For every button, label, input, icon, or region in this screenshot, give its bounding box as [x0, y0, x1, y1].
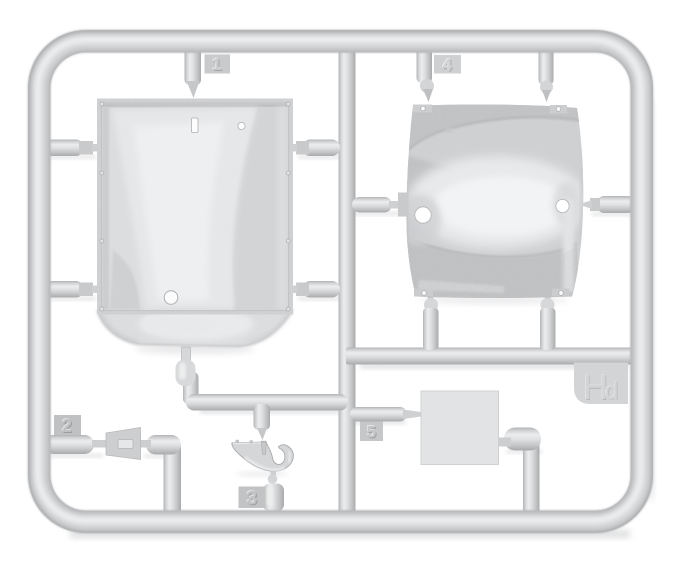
- svg-text:1: 1: [212, 55, 221, 74]
- svg-text:d: d: [605, 378, 618, 405]
- svg-text:2: 2: [62, 416, 72, 436]
- svg-text:4: 4: [443, 56, 453, 75]
- svg-text:5: 5: [367, 423, 376, 442]
- svg-text:3: 3: [247, 489, 258, 510]
